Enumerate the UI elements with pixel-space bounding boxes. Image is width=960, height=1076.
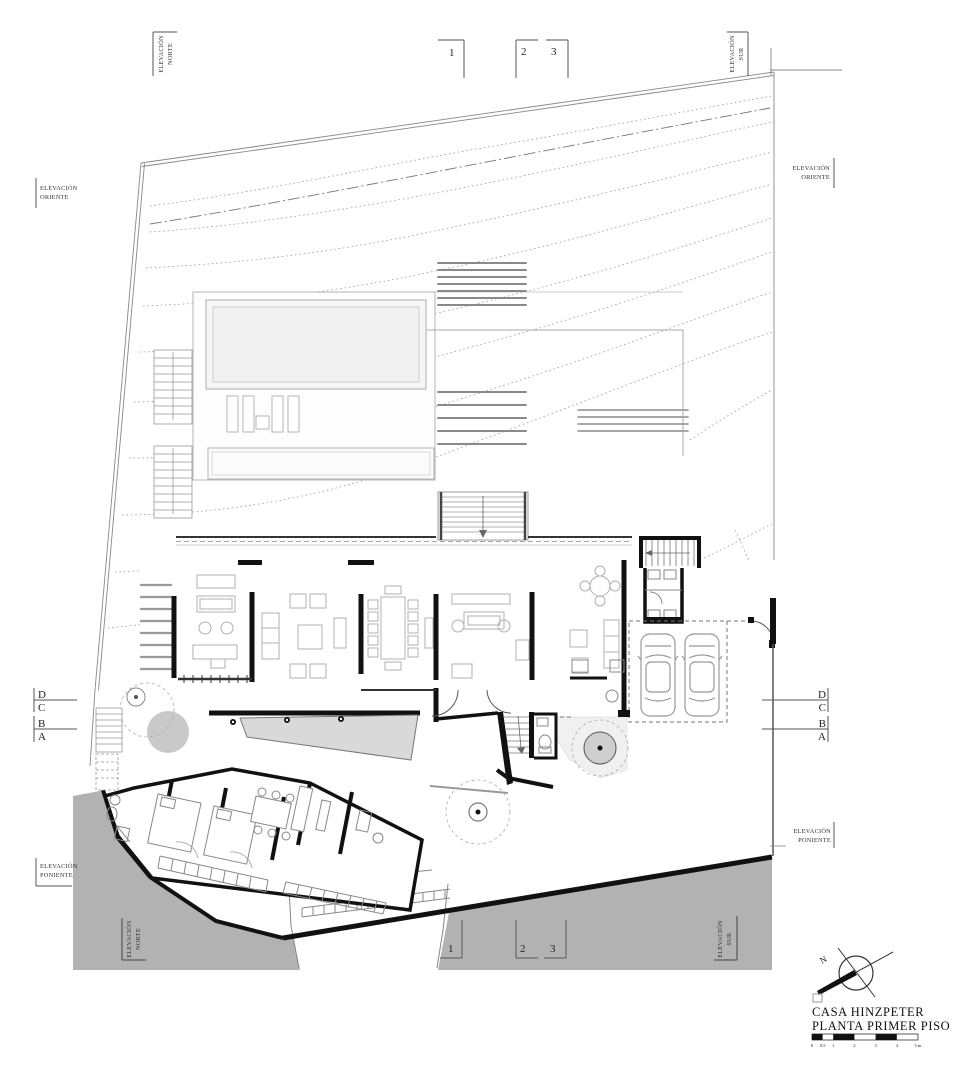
grid-col-1-top: 1 [449, 47, 455, 59]
grid-col-2-bottom: 2 [520, 943, 526, 955]
grid-col-2-top: 2 [521, 46, 527, 58]
svg-text:SUR: SUR [726, 932, 733, 946]
grid-row-c-left: C [38, 702, 45, 714]
elev-poniente-right: ELEVACIÓN PONIENTE [770, 822, 834, 848]
elev-oriente-left: ELEVACIÓN ORIENTE [36, 178, 78, 208]
tree-canopy [147, 711, 189, 753]
svg-text:NORTE: NORTE [167, 43, 174, 65]
ramp [240, 715, 418, 760]
grid-row-b-right: B [819, 718, 826, 730]
svg-text:4: 4 [896, 1043, 899, 1048]
car-right [682, 634, 722, 716]
svg-text:ELEVACIÓN: ELEVACIÓN [125, 920, 133, 958]
grid-row-b-left: B [38, 718, 45, 730]
svg-text:ELEVACIÓN: ELEVACIÓN [40, 862, 78, 870]
elev-norte-top: ELEVACIÓN NORTE [153, 32, 177, 76]
pergola-slats-upper [438, 263, 526, 305]
grid-row-d-right: D [818, 689, 826, 701]
svg-text:ELEVACIÓN: ELEVACIÓN [40, 184, 78, 192]
svg-text:ORIENTE: ORIENTE [40, 194, 69, 201]
svg-text:1: 1 [832, 1043, 835, 1048]
garden-stair-upper [154, 350, 192, 424]
svg-text:PONIENTE: PONIENTE [798, 837, 831, 844]
svg-text:ORIENTE: ORIENTE [801, 174, 830, 181]
grid-row-a-right: A [818, 731, 826, 743]
entry-stair [438, 492, 528, 540]
svg-text:2: 2 [853, 1043, 856, 1048]
car-left [638, 634, 678, 716]
site-plan-svg: 1 2 3 1 2 3 D C B A D C B A ELEVACIÓN NO… [0, 0, 960, 1076]
svg-text:0.5: 0.5 [820, 1043, 826, 1048]
pergola-slats-middle [438, 392, 526, 444]
grid-row-a-left: A [38, 731, 46, 743]
grid-col-3-bottom: 3 [550, 943, 556, 955]
garden-stair-lower [154, 446, 192, 518]
grid-col-3-top: 3 [551, 46, 557, 58]
east-wall [770, 598, 776, 644]
powder-room [534, 714, 556, 758]
svg-text:PONIENTE: PONIENTE [40, 872, 73, 879]
deck [208, 448, 434, 479]
plan-mask-left [140, 528, 632, 722]
svg-text:ELEVACIÓN: ELEVACIÓN [716, 920, 724, 958]
grid-row-c-right: C [819, 702, 826, 714]
grid-row-d-left: D [38, 689, 46, 701]
svg-text:0: 0 [811, 1043, 814, 1048]
pergola-slats-right [578, 410, 688, 431]
floor-plan-sheet: 1 2 3 1 2 3 D C B A D C B A ELEVACIÓN NO… [0, 0, 960, 1076]
svg-text:5 m: 5 m [914, 1043, 921, 1048]
svg-text:ELEVACIÓN: ELEVACIÓN [793, 827, 831, 835]
elev-oriente-right: ELEVACIÓN ORIENTE [792, 158, 834, 188]
scale-bar: 0 0.5 1 2 3 4 5 m [811, 1034, 922, 1048]
svg-text:3: 3 [874, 1043, 877, 1048]
grid-markers-top [438, 40, 568, 78]
north-arrow-icon: N [817, 948, 893, 997]
north-label: N [818, 954, 829, 966]
legend-square [813, 994, 822, 1002]
elev-poniente-left: ELEVACIÓN PONIENTE [36, 858, 78, 886]
project-title: CASA HINZPETER [812, 1005, 924, 1019]
grid-col-1-bottom: 1 [448, 943, 454, 955]
pool-terrace [154, 292, 683, 518]
title-block: N CASA HINZPETER PLANTA PRIMER PISO 0 0.… [811, 948, 950, 1048]
service-stair [641, 538, 699, 568]
elev-sur-top: ELEVACIÓN SUR [727, 32, 748, 76]
bath-block [645, 568, 682, 622]
svg-text:ELEVACIÓN: ELEVACIÓN [157, 35, 165, 73]
svg-text:ELEVACIÓN: ELEVACIÓN [792, 164, 830, 172]
boundary-stair [96, 708, 122, 790]
svg-text:NORTE: NORTE [135, 928, 142, 950]
svg-text:ELEVACIÓN: ELEVACIÓN [728, 35, 736, 73]
setback-dashdot-line [150, 108, 770, 224]
svg-text:SUR: SUR [738, 47, 745, 61]
sheet-title: PLANTA PRIMER PISO [812, 1019, 950, 1033]
